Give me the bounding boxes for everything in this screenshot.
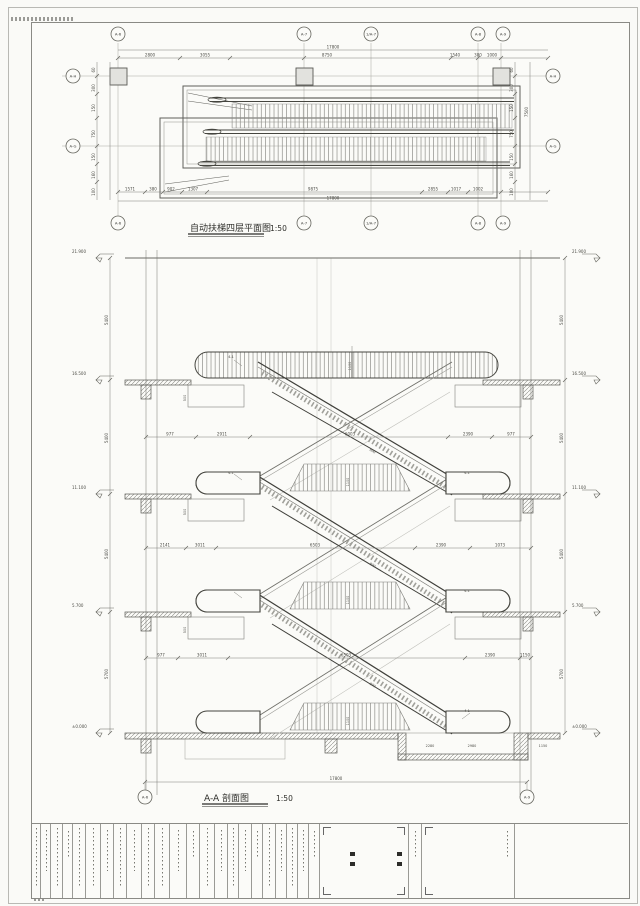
dim-text: 8750 xyxy=(322,53,333,58)
grid-bubble-label: A-H xyxy=(70,74,77,79)
grid-bubble-label: A-6 xyxy=(115,32,122,37)
grid-bubble-label: A-6 xyxy=(142,795,149,800)
grid-bubble-label: A-6 xyxy=(115,221,122,226)
section-title-text: A-A 剖面图 xyxy=(204,792,249,804)
titleblock-cell xyxy=(51,824,63,898)
dim-text: 17800 xyxy=(327,196,340,201)
dim-text: 800 xyxy=(369,448,377,455)
titleblock-cell xyxy=(187,824,200,898)
dim-text: 100 xyxy=(91,188,96,196)
dim-text: 60 xyxy=(509,67,514,73)
dim-text: 150 xyxy=(91,104,96,112)
section-title-scale: 1:50 xyxy=(276,794,293,803)
titleblock-cell xyxy=(63,824,73,898)
dim-text: 7500 xyxy=(524,106,529,117)
dim-text: 1100 xyxy=(346,478,350,487)
titleblock-cell xyxy=(215,824,228,898)
grid-bubble-label: 1/A-7 xyxy=(366,32,377,37)
dim-text: 2855 xyxy=(428,187,439,192)
level-text: 21.900 xyxy=(72,249,86,254)
titleblock-cell xyxy=(252,824,263,898)
grid-bubble-label: A-G xyxy=(70,144,77,149)
detail-ref-text: 4-1 xyxy=(228,471,234,475)
dim-text: 1307 xyxy=(188,187,199,192)
dim-text: 5400 xyxy=(104,432,109,443)
titleblock-stamp-area xyxy=(320,824,409,898)
dim-text: 1073 xyxy=(495,543,506,548)
level-text: ±0.000 xyxy=(72,724,87,729)
dim-text: 5700 xyxy=(559,668,564,679)
dim-text: 1100 xyxy=(346,717,350,726)
dim-text: 5400 xyxy=(104,314,109,325)
titleblock-cell xyxy=(155,824,170,898)
titleblock-cell xyxy=(298,824,309,898)
dim-text: 380 xyxy=(149,187,157,192)
dim-text: 5400 xyxy=(559,432,564,443)
level-text: 5.700 xyxy=(72,603,84,608)
titleblock-cell xyxy=(41,824,51,898)
level-text: 16.500 xyxy=(572,371,586,376)
dim-text: 380 xyxy=(474,53,482,58)
dim-text: 300 xyxy=(509,84,514,92)
detail-ref-text: 4-1 xyxy=(464,471,470,475)
dim-text: 1571 xyxy=(125,187,136,192)
titleblock-cell xyxy=(142,824,155,898)
dim-text: 6503 xyxy=(341,653,352,658)
dim-text: 977 xyxy=(166,432,174,437)
dim-text: 977 xyxy=(507,432,515,437)
level-text: 16.500 xyxy=(72,371,86,376)
dim-text: 2390 xyxy=(436,543,447,548)
titleblock-cell xyxy=(422,824,515,898)
dim-text: 2980 xyxy=(468,744,477,748)
dim-text: 2800 xyxy=(145,53,156,58)
titleblock-cell xyxy=(276,824,287,898)
dim-text: 750 xyxy=(91,130,96,138)
plan-columns xyxy=(110,68,510,85)
section-title: A-A 剖面图 1:50 xyxy=(202,792,293,807)
dim-text: 150 xyxy=(509,153,514,161)
titleblock-cell xyxy=(31,824,41,898)
plan-title-text: 自动扶梯四层平面图 xyxy=(190,222,271,234)
dim-text: 160 xyxy=(509,171,514,179)
titleblock-signature-area xyxy=(515,824,628,898)
escalator-pairs xyxy=(188,360,521,739)
titleblock-cell xyxy=(200,824,215,898)
dim-text: 2280 xyxy=(426,744,435,748)
grid-bubble-label: A-H xyxy=(550,74,557,79)
grid-bubble-label: A-7 xyxy=(301,32,308,37)
dim-text: 9875 xyxy=(308,187,319,192)
grid-bubble-label: A-9 xyxy=(500,221,507,226)
top-landing-balustrades xyxy=(195,346,498,378)
dim-text: 6003 xyxy=(345,432,356,437)
level-text: 11.100 xyxy=(572,485,586,490)
grid-bubble-label: A-8 xyxy=(475,32,482,37)
titleblock-cell xyxy=(86,824,101,898)
titleblock-cell xyxy=(73,824,86,898)
dim-text: 3055 xyxy=(200,53,211,58)
level-text: 5.700 xyxy=(572,603,584,608)
dim-text: 1002 xyxy=(473,187,484,192)
dim-text: 2390 xyxy=(485,653,496,658)
plan-grid-bubbles: A-6 A-7 1/A-7 A-8 A-9 A-6 A-7 1/A-7 A-8 … xyxy=(66,27,560,230)
dim-text: 1150 xyxy=(539,744,548,748)
titleblock-cell xyxy=(263,824,276,898)
level-text: 21.900 xyxy=(572,249,586,254)
dim-text: 1100 xyxy=(346,596,350,605)
dim-text: 500 xyxy=(183,627,187,633)
dim-text: 150 xyxy=(91,153,96,161)
detail-ref-text: 4-1 xyxy=(464,709,470,713)
titleblock-cell xyxy=(114,824,127,898)
dim-text: 60 xyxy=(91,67,96,73)
level-text: ±0.000 xyxy=(572,724,587,729)
ground-slab xyxy=(125,733,560,760)
section-grid-bubbles: A-6 A-9 xyxy=(138,782,534,804)
dim-text: 300 xyxy=(91,84,96,92)
dim-text: 977 xyxy=(157,653,165,658)
plan-view: A-6 A-7 1/A-7 A-8 A-9 A-6 A-7 1/A-7 A-8 … xyxy=(62,27,560,237)
dim-text: 3011 xyxy=(195,543,206,548)
plan-title: 自动扶梯四层平面图 1:50 xyxy=(188,222,287,237)
dim-text: 2141 xyxy=(160,543,171,548)
level-markers: 21.900 16.500 11.100 5.700 ±0.000 21.900… xyxy=(72,249,600,737)
dim-text: 6503 xyxy=(310,543,321,548)
dim-text: 160 xyxy=(91,171,96,179)
dim-text: 1150 xyxy=(520,653,531,658)
dim-text: 5400 xyxy=(559,314,564,325)
detail-ref-text: 4-1 xyxy=(464,589,470,593)
titleblock-cell xyxy=(309,824,320,898)
grid-bubble-label: A-7 xyxy=(301,221,308,226)
dim-text: 150 xyxy=(509,104,514,112)
titleblock-cell xyxy=(239,824,252,898)
plan-step-bands xyxy=(206,104,512,161)
dim-text: 1000 xyxy=(487,53,498,58)
titleblock-cell xyxy=(170,824,187,898)
dim-text: 100 xyxy=(509,188,514,196)
grid-bubble-label: A-8 xyxy=(475,221,482,226)
grid-bubble-label: A-9 xyxy=(524,795,531,800)
grid-bubble-label: 1/A-7 xyxy=(366,221,377,226)
titleblock-cell xyxy=(287,824,298,898)
titleblock-cell xyxy=(101,824,114,898)
title-block xyxy=(31,823,628,898)
titleblock-cell xyxy=(228,824,239,898)
dim-text: 1540 xyxy=(450,53,461,58)
titleblock-cell xyxy=(409,824,422,898)
dim-text: 902 xyxy=(167,187,175,192)
dim-text: 5700 xyxy=(104,668,109,679)
dim-text: 3011 xyxy=(197,653,208,658)
dim-text: 500 xyxy=(183,509,187,515)
level-text: 11.100 xyxy=(72,485,86,490)
dim-text: 17800 xyxy=(327,45,340,50)
dim-text: 5400 xyxy=(559,548,564,559)
dim-text: 750 xyxy=(509,130,514,138)
grid-bubble-label: A-G xyxy=(550,144,557,149)
titleblock-cell xyxy=(127,824,142,898)
drawing-sheet: A-6 A-7 1/A-7 A-8 A-9 A-6 A-7 1/A-7 A-8 … xyxy=(0,0,640,906)
dim-text: 5400 xyxy=(104,548,109,559)
dim-text: 1100 xyxy=(348,362,352,371)
dim-text: 1017 xyxy=(451,187,462,192)
detail-ref-text: 4-1 xyxy=(228,355,234,359)
grid-bubble-label: A-9 xyxy=(500,32,507,37)
plan-title-scale: 1:50 xyxy=(270,224,287,233)
dim-text: 2911 xyxy=(217,432,228,437)
section-view: 21.900 16.500 11.100 5.700 ±0.000 21.900… xyxy=(72,249,600,807)
drawing-canvas: A-6 A-7 1/A-7 A-8 A-9 A-6 A-7 1/A-7 A-8 … xyxy=(0,0,640,906)
dim-text: 17800 xyxy=(330,776,343,781)
dim-text: 2390 xyxy=(463,432,474,437)
dim-text: 500 xyxy=(183,395,187,401)
footer-microtext xyxy=(34,899,44,901)
